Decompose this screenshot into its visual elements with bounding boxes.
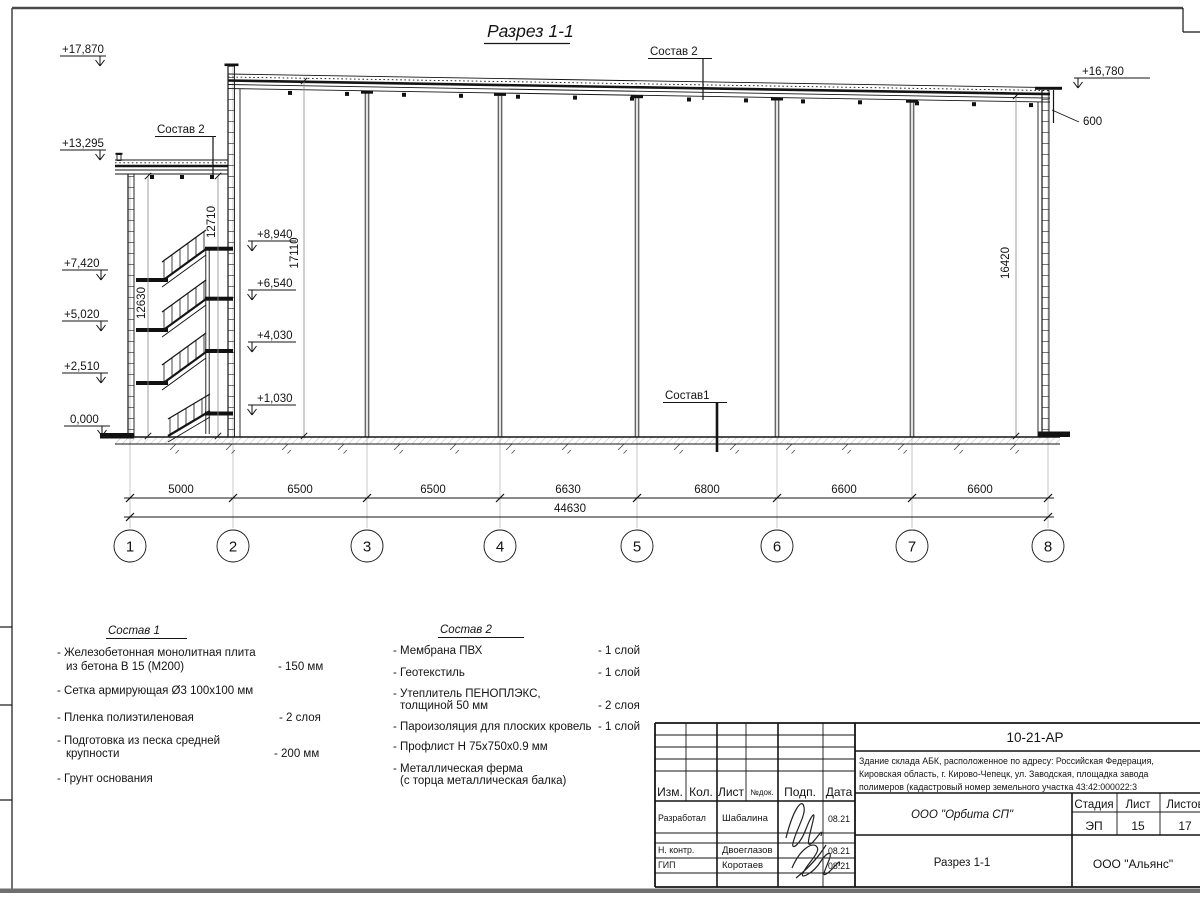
- elevation-0000: 0,000: [64, 414, 110, 436]
- legend-sostav-2: Состав 2 - Мембрана ПВХ - 1 слой - Геоте…: [393, 624, 640, 787]
- svg-text:- 2 слоя: - 2 слоя: [279, 712, 321, 724]
- svg-text:3: 3: [363, 539, 371, 556]
- wall-axis-1: [128, 174, 134, 437]
- view-title: Разрез 1-1: [484, 21, 574, 44]
- svg-text:+2,510: +2,510: [64, 361, 100, 373]
- sheet-label: Лист: [1126, 799, 1152, 811]
- title-block: 10-21-АР Здание склада АБК, расположенно…: [655, 723, 1200, 887]
- svg-text:+7,420: +7,420: [64, 258, 100, 270]
- legend1-title: Состав 1: [108, 625, 160, 637]
- svg-text:2: 2: [229, 539, 237, 556]
- drawing-sheet: Разрез 1-1: [0, 0, 1200, 900]
- svg-text:4: 4: [496, 539, 504, 556]
- span-dim-2: 6500: [287, 484, 313, 496]
- callout-sostav2-abk: Состав 2: [155, 124, 216, 176]
- fold-marks: [0, 627, 12, 800]
- axis-bubble-5: 5: [621, 530, 653, 562]
- svg-text:- Пленка полиэтиленовая: - Пленка полиэтиленовая: [57, 712, 194, 724]
- columns: [361, 91, 918, 437]
- dim-12630: 12630: [136, 287, 148, 319]
- axis-bubble-6: 6: [761, 530, 793, 562]
- span-dim-1: 5000: [168, 484, 194, 496]
- svg-text:+13,295: +13,295: [62, 138, 104, 150]
- parapet-600-dim: 600: [1052, 110, 1102, 128]
- svg-text:- 1 слой: - 1 слой: [598, 645, 640, 657]
- axis-bubble-8: 8: [1032, 530, 1064, 562]
- elevation-4030: +4,030: [248, 330, 297, 352]
- svg-text:Здание склада АБК, расположенн: Здание склада АБК, расположенное по адре…: [859, 756, 1154, 766]
- frame-bottom-bar: [0, 889, 1200, 894]
- dim-12710: 12710: [206, 206, 218, 238]
- elevation-5020: +5,020: [62, 309, 108, 331]
- dim-16420: 16420: [1000, 247, 1012, 279]
- stage-sheet-cells: Стадия Лист Листов ЭП 15 17: [1074, 799, 1200, 833]
- svg-text:+16,780: +16,780: [1082, 66, 1124, 78]
- legend-sostav-1: Состав 1 - Железобетонная монолитная пли…: [57, 625, 323, 785]
- dim-17110: 17110: [289, 237, 301, 268]
- building-section: [100, 64, 1070, 454]
- svg-text:600: 600: [1083, 116, 1102, 128]
- stage-value: ЭП: [1085, 819, 1102, 833]
- view-title-text: Разрез 1-1: [487, 21, 574, 41]
- svg-text:- Профлист Н 75х750х0.9 мм: - Профлист Н 75х750х0.9 мм: [393, 741, 548, 753]
- svg-text:+6,540: +6,540: [257, 278, 293, 290]
- col-list: Лист: [718, 785, 745, 799]
- svg-text:(с торца металлическая балка): (с торца металлическая балка): [400, 775, 567, 787]
- svg-text:5: 5: [633, 539, 641, 556]
- svg-text:+17,870: +17,870: [62, 44, 104, 56]
- svg-text:0,000: 0,000: [70, 414, 99, 426]
- svg-text:- Пароизоляция для плоских кро: - Пароизоляция для плоских кровель: [393, 721, 592, 733]
- svg-text:1: 1: [126, 539, 134, 556]
- stage-label: Стадия: [1074, 799, 1113, 811]
- row-name-0: Шабалина: [722, 813, 769, 824]
- svg-text:из бетона В 15 (М200): из бетона В 15 (М200): [66, 661, 184, 673]
- signature-0: [786, 804, 822, 847]
- elevation-1030: +1,030: [248, 393, 297, 415]
- floor-slab: [100, 432, 1070, 454]
- row-date-0: 08.21: [828, 814, 850, 824]
- svg-text:- 150 мм: - 150 мм: [278, 661, 323, 673]
- svg-text:7: 7: [908, 539, 916, 556]
- sheet-value: 15: [1131, 819, 1145, 833]
- span-dim-3: 6500: [420, 484, 446, 496]
- svg-text:Состав 2: Состав 2: [157, 124, 205, 136]
- elevation-17870: +17,870: [60, 44, 106, 66]
- col-data: Дата: [826, 785, 853, 799]
- row-role-2: ГИП: [658, 860, 675, 870]
- abk-floors: [136, 247, 233, 434]
- svg-text:- Железобетонная монолитная п: - Железобетонная монолитная плита: [57, 647, 256, 659]
- svg-text:полимеров (кадастровый номер з: полимеров (кадастровый номер земельного …: [859, 782, 1137, 792]
- roof-purlin-clips: [288, 91, 1033, 107]
- callouts: Состав 2 Состав 2 Состав1: [155, 46, 727, 452]
- svg-text:толщиной 50 мм: толщиной 50 мм: [400, 700, 488, 712]
- row-date-1: 08.21: [828, 846, 850, 856]
- svg-text:- Сетка армирующая Ø3 100х100: - Сетка армирующая Ø3 100х100 мм: [57, 685, 253, 697]
- row-role-1: Н. контр.: [658, 845, 694, 855]
- elevation-16780: +16,780: [1074, 66, 1151, 88]
- svg-text:+1,030: +1,030: [257, 393, 293, 405]
- svg-text:Состав 2: Состав 2: [650, 46, 698, 58]
- axis-bubble-4: 4: [484, 530, 516, 562]
- total-dim: 44630: [554, 503, 586, 515]
- row-name-2: Коротаев: [722, 860, 763, 871]
- elevation-13295: +13,295: [60, 138, 106, 160]
- svg-text:- Геотекстиль: - Геотекстиль: [393, 667, 465, 679]
- col-izm: Изм.: [657, 785, 683, 799]
- col-podp: Подп.: [784, 785, 816, 799]
- parapet-cap-left: [225, 64, 239, 67]
- stair-flights: [162, 230, 210, 442]
- dimension-row-total: 44630: [124, 503, 1054, 521]
- span-dim-5: 6800: [694, 484, 720, 496]
- svg-text:- Грунт основания: - Грунт основания: [57, 773, 153, 785]
- svg-text:крупности: крупности: [66, 748, 119, 760]
- axis-bubbles: 1 2 3 4 5 6 7 8: [114, 530, 1064, 562]
- elevation-marks: +17,870 +13,295 +7,420 +5,020 +2,510 0,0…: [60, 44, 1150, 436]
- row-name-1: Двоеглазов: [722, 845, 773, 856]
- svg-text:Кировская область, г. Кирово-Ч: Кировская область, г. Кирово-Чепецк, ул.…: [859, 769, 1149, 779]
- axis-bubble-1: 1: [114, 530, 146, 562]
- svg-text:- Мембрана ПВХ: - Мембрана ПВХ: [393, 645, 483, 657]
- elevation-7420: +7,420: [62, 258, 108, 280]
- svg-text:+5,020: +5,020: [64, 309, 100, 321]
- span-dim-4: 6630: [555, 484, 581, 496]
- legend2-title: Состав 2: [440, 624, 492, 636]
- parapet-cap-right: [1035, 87, 1062, 90]
- svg-text:+8,940: +8,940: [257, 229, 293, 241]
- ground-hatch: [125, 445, 1055, 454]
- svg-text:- Утеплитель ПЕНОПЛЭКС,: - Утеплитель ПЕНОПЛЭКС,: [393, 688, 541, 700]
- svg-text:8: 8: [1044, 539, 1052, 556]
- svg-text:- Металлическая ферма: - Металлическая ферма: [393, 763, 524, 775]
- vertical-dimensions: 12710 12630 17110 16420: [136, 78, 1019, 439]
- col-ndok: №док.: [750, 788, 773, 797]
- dimension-row-spans: 5000 6500 6500 6630 6800 6600 6600: [124, 484, 1054, 502]
- project-description: Здание склада АБК, расположенное по адре…: [859, 756, 1154, 792]
- svg-text:- Подготовка из песка средней: - Подготовка из песка средней: [57, 735, 220, 747]
- axis-bubble-3: 3: [351, 530, 383, 562]
- doc-number: 10-21-АР: [1006, 730, 1063, 745]
- svg-text:Состав1: Состав1: [665, 390, 710, 402]
- stamp-view-name: Разрез 1-1: [934, 857, 990, 869]
- elevation-6540: +6,540: [248, 278, 297, 300]
- elevation-2510: +2,510: [62, 361, 108, 383]
- org-general: ООО "Альянс": [1093, 857, 1173, 871]
- sheets-label: Листов: [1166, 799, 1200, 811]
- row-role-0: Разработал: [658, 813, 706, 823]
- col-kol: Кол.: [689, 785, 713, 799]
- svg-text:- 200 мм: - 200 мм: [274, 748, 319, 760]
- svg-text:- 1 слой: - 1 слой: [598, 667, 640, 679]
- stamp-signature-rows: Разработал Шабалина 08.21 Н. контр. Двое…: [658, 804, 850, 878]
- axis-bubble-7: 7: [896, 530, 928, 562]
- svg-text:- 1 слой: - 1 слой: [598, 721, 640, 733]
- svg-text:+4,030: +4,030: [257, 330, 293, 342]
- span-dim-7: 6600: [967, 484, 993, 496]
- org-design: ООО "Орбита СП": [911, 809, 1014, 821]
- wall-axis-8: [1035, 87, 1062, 437]
- axis-bubble-2: 2: [217, 530, 249, 562]
- span-dim-6: 6600: [831, 484, 857, 496]
- svg-text:- 2 слоя: - 2 слоя: [598, 700, 640, 712]
- sheets-value: 17: [1178, 819, 1192, 833]
- svg-text:6: 6: [773, 539, 781, 556]
